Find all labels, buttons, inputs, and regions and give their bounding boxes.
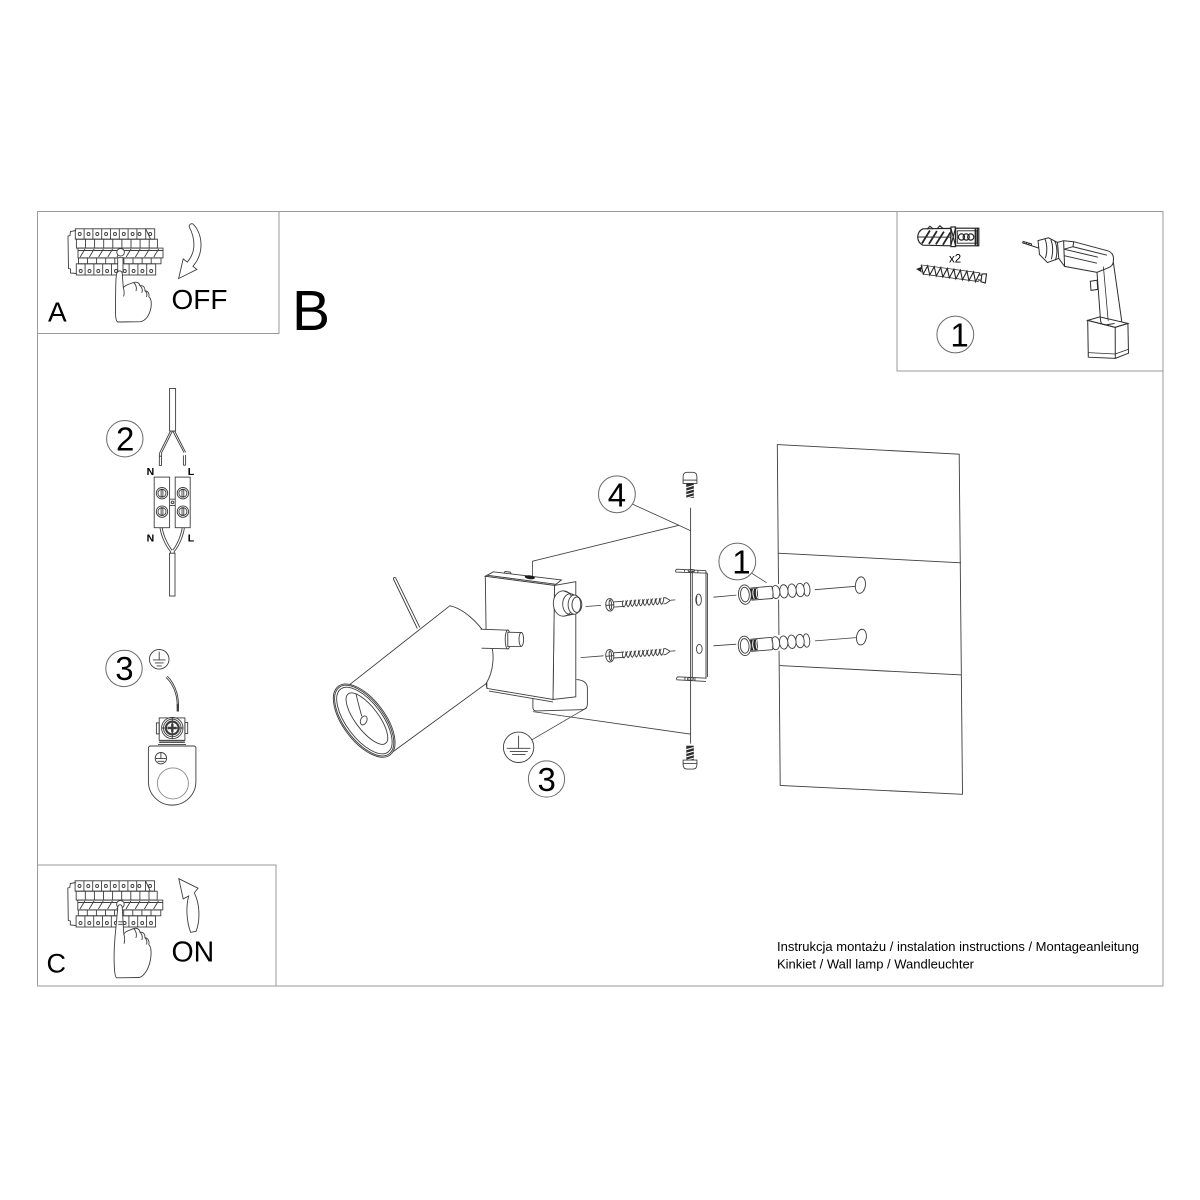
svg-text:1: 1: [732, 544, 750, 581]
svg-text:2: 2: [116, 421, 134, 458]
svg-text:1: 1: [950, 317, 968, 354]
svg-text:3: 3: [115, 650, 133, 687]
svg-text:Instrukcja montażu / instalati: Instrukcja montażu / instalation instruc…: [777, 939, 1139, 954]
svg-text:L: L: [188, 533, 195, 545]
svg-text:Kinkiet / Wall lamp / Wandleuc: Kinkiet / Wall lamp / Wandleuchter: [777, 956, 975, 971]
svg-text:A: A: [48, 297, 67, 328]
svg-text:OFF: OFF: [172, 284, 228, 315]
svg-text:N: N: [147, 533, 155, 545]
svg-text:L: L: [188, 466, 195, 478]
svg-text:B: B: [292, 279, 330, 343]
svg-text:4: 4: [608, 476, 626, 513]
svg-text:x2: x2: [949, 254, 961, 266]
svg-text:ON: ON: [172, 937, 215, 969]
svg-text:N: N: [147, 466, 155, 478]
svg-text:3: 3: [538, 761, 556, 798]
svg-text:C: C: [47, 949, 67, 979]
